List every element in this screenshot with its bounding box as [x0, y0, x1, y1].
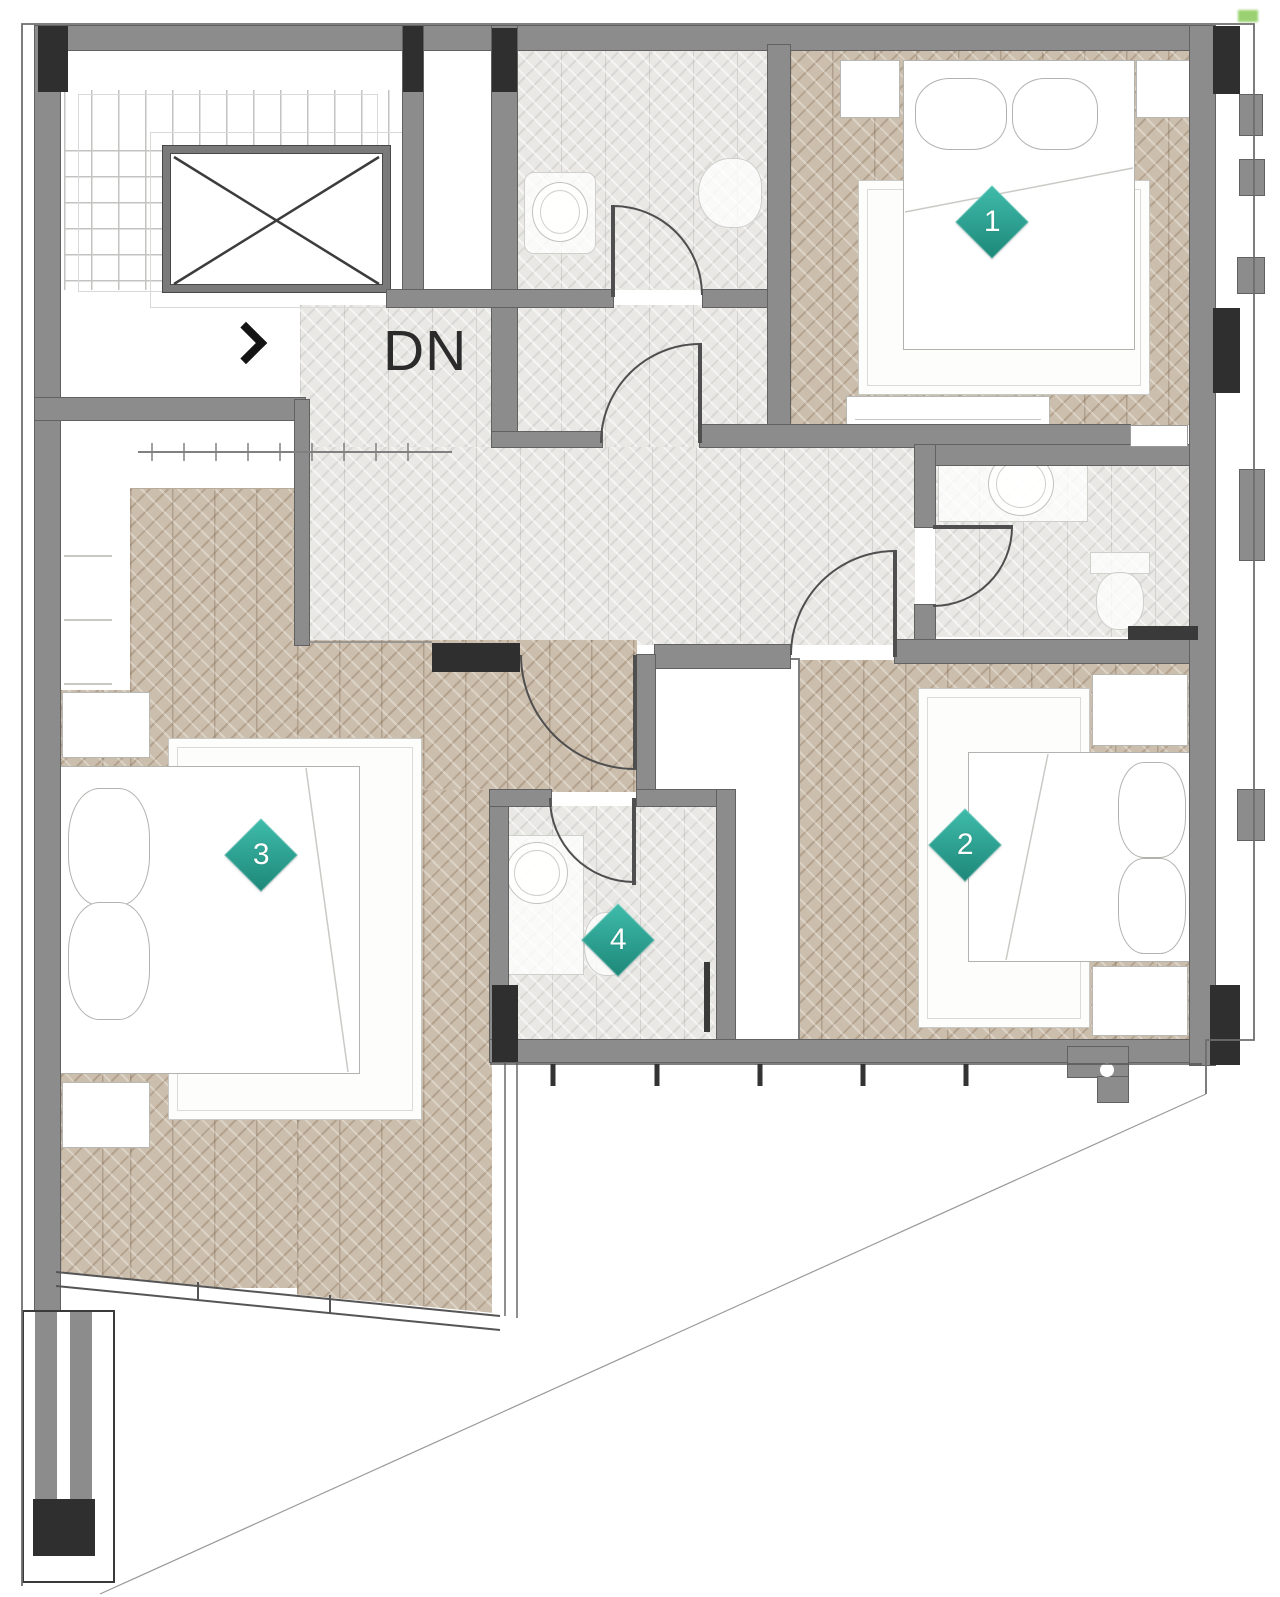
stairs-down-label: DN [383, 318, 467, 384]
wall-bathmid-left [915, 605, 935, 640]
facade-stub [1240, 95, 1262, 135]
pillow [68, 902, 150, 1020]
wall-bedroom1-left [768, 45, 790, 447]
wall-left [35, 400, 60, 1320]
facade-pillar [22, 1310, 115, 1583]
nightstand [1092, 966, 1188, 1036]
nightstand [62, 1082, 150, 1148]
shower-threshold [1128, 626, 1198, 640]
green-artifact [1238, 10, 1258, 22]
wall-bath4-right [717, 790, 735, 1062]
pillow [68, 788, 150, 906]
chevron-right-icon [225, 322, 267, 364]
window-niche [1130, 425, 1188, 447]
wall-stair-bottom [35, 398, 305, 420]
facade-stub [1240, 160, 1264, 195]
column [492, 985, 518, 1062]
wall-top [35, 26, 1190, 50]
room-marker-number: 4 [610, 923, 627, 957]
facade-stub [1240, 470, 1264, 560]
corner-step-block [1098, 1077, 1128, 1102]
corner-hole [1100, 1063, 1114, 1077]
floor-plan: DN 1 2 3 4 [0, 0, 1280, 1597]
wall-bedroom1-bottom [700, 425, 1130, 447]
pillow [915, 78, 1007, 150]
pillow [1118, 858, 1186, 954]
wall-bedroom3-door-side [637, 655, 655, 795]
column [38, 26, 68, 92]
pillow [1118, 762, 1186, 858]
nightstand [62, 692, 150, 758]
pillow [1012, 78, 1098, 150]
sink [506, 842, 568, 904]
toilet [1096, 572, 1144, 630]
facade-stub [1238, 258, 1264, 293]
wall-hall-bottom [655, 645, 790, 668]
wall-bathmid-top [915, 445, 1190, 465]
toilet [698, 158, 762, 228]
wall-hall-stub [492, 432, 602, 447]
column [403, 26, 423, 92]
terrace-area [50, 1268, 505, 1597]
wall-bathmid-left [915, 445, 935, 527]
wall-block-dark [432, 643, 520, 672]
nightstand [840, 60, 900, 118]
sink [532, 182, 588, 242]
wall-bath-bottom [703, 290, 768, 307]
room-marker-number: 3 [253, 838, 270, 872]
corner-step-block [1068, 1047, 1128, 1077]
nightstand [1136, 60, 1190, 118]
shower-bar [704, 962, 710, 1032]
wall-divider [295, 400, 309, 645]
room-marker-number: 1 [984, 205, 1001, 239]
elevator-shaft-box [163, 146, 390, 292]
room-marker-number: 2 [957, 828, 974, 862]
nightstand [1092, 674, 1188, 746]
wall-hall-bottom [895, 640, 1190, 663]
column [1213, 308, 1240, 393]
facade-stub [1238, 790, 1264, 840]
wall-right [1190, 26, 1215, 1065]
column [1213, 26, 1240, 94]
wall-bath4-top [490, 790, 551, 806]
toilet [1090, 552, 1150, 574]
column [1210, 985, 1240, 1065]
wall-bath-bottom [387, 290, 613, 307]
column [492, 28, 517, 92]
